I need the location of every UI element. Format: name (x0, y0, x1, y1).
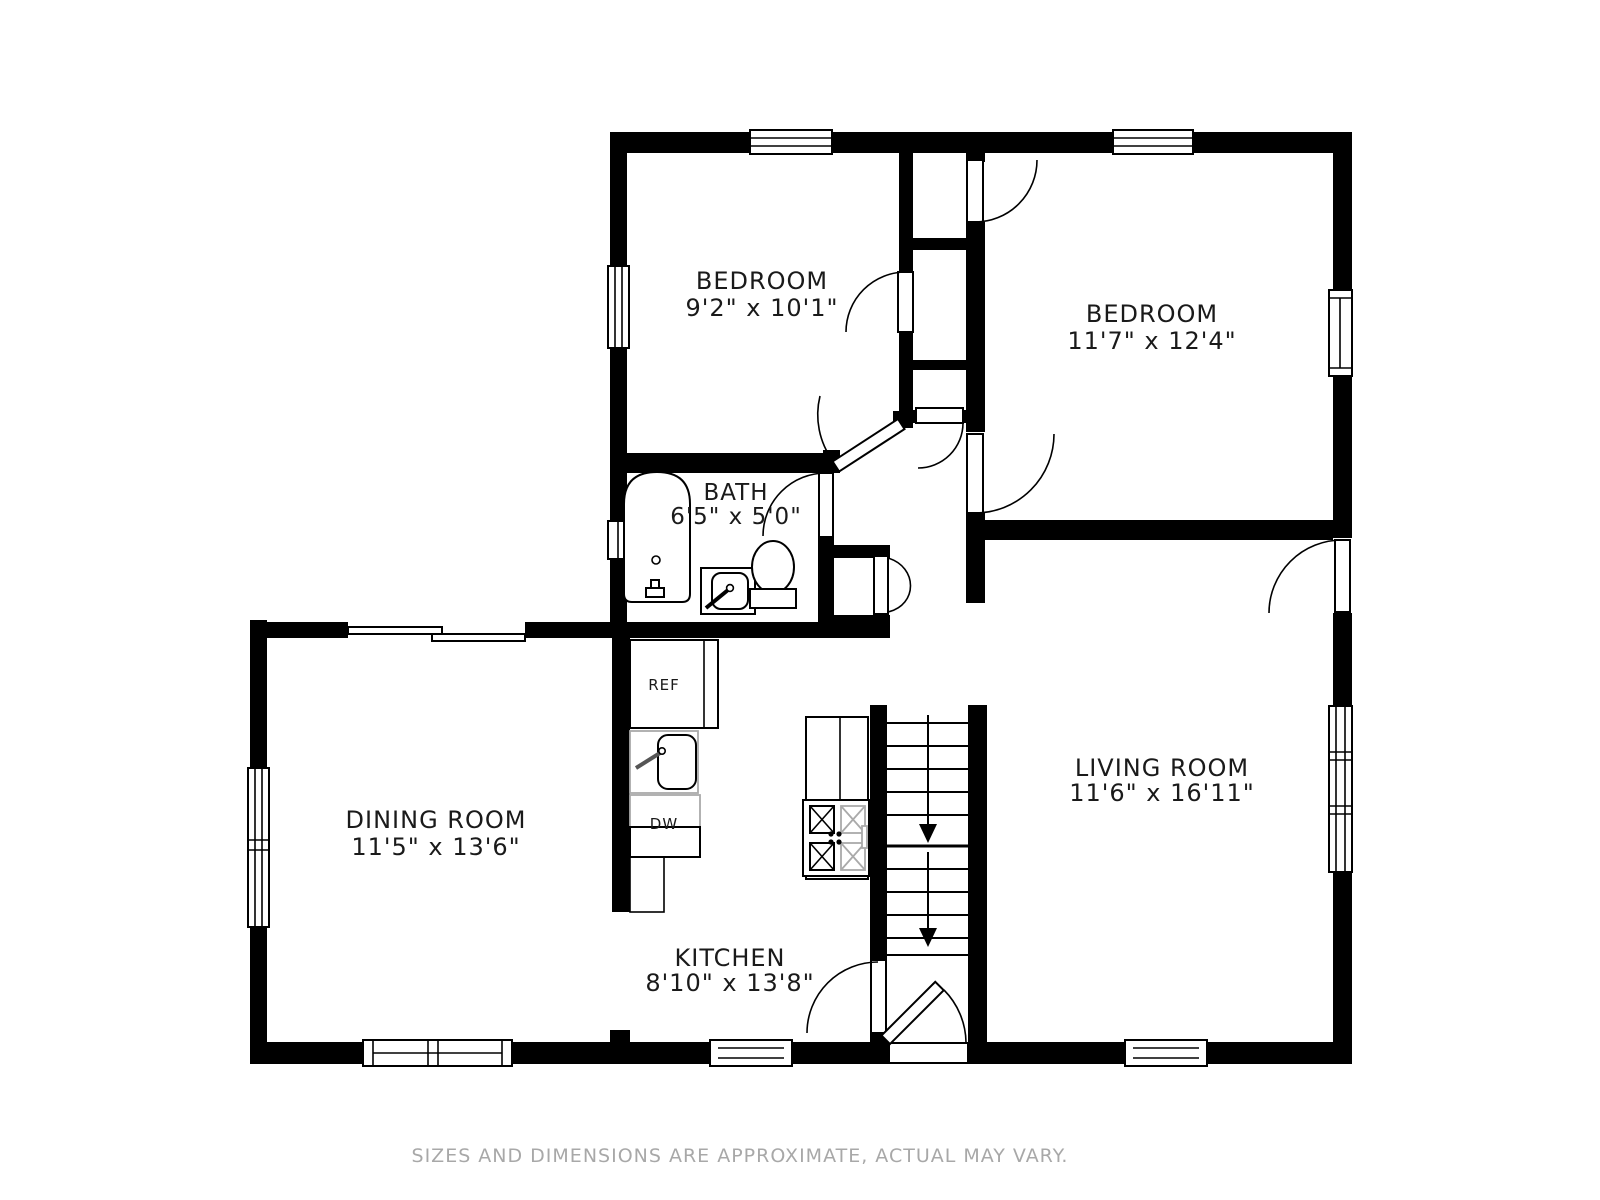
bathroom-sink-icon (701, 568, 755, 614)
bedroom-2-top-window (1113, 130, 1193, 154)
living-room-bottom-window (1125, 1040, 1207, 1066)
dining-room-pass-through (348, 627, 525, 641)
kitchen-door (807, 960, 886, 1033)
disclaimer-text: SIZES AND DIMENSIONS ARE APPROXIMATE, AC… (412, 1145, 1069, 1167)
entry-door (882, 982, 967, 1062)
room-label-bedroom-2: BEDROOM (1086, 300, 1218, 328)
room-dims-living-room: 11'6" x 16'11" (1069, 779, 1255, 807)
living-room-right-window (1329, 706, 1352, 872)
kitchen-fixtures: REF DW (630, 640, 869, 912)
room-dims-bedroom-1: 9'2" x 10'1" (685, 294, 838, 322)
room-label-bath: BATH (703, 480, 768, 506)
dining-room-bottom-window (363, 1040, 512, 1066)
room-label-living-room: LIVING ROOM (1075, 754, 1249, 782)
toilet-icon (750, 541, 796, 608)
dishwasher-label: DW (650, 815, 678, 833)
bedroom-1-left-window (608, 266, 629, 348)
dining-room-left-window (248, 768, 269, 927)
refrigerator-icon: REF (630, 640, 718, 728)
bedroom-2-right-window (1329, 290, 1352, 376)
bedroom-2-closet-door (967, 160, 1037, 222)
room-label-bedroom-1: BEDROOM (696, 267, 828, 295)
stove-icon (803, 800, 869, 876)
room-label-dining-room: DINING ROOM (346, 806, 527, 834)
room-dims-kitchen: 8'10" x 13'8" (645, 969, 814, 997)
kitchen-bottom-window (710, 1040, 792, 1066)
doors (763, 160, 1352, 1062)
hall-closet-door (874, 556, 911, 614)
bathtub-icon (624, 472, 690, 602)
room-dims-bedroom-2: 11'7" x 12'4" (1067, 327, 1236, 355)
bedroom-1-top-window (750, 130, 832, 154)
bedroom-2-door (967, 434, 1054, 513)
floor-plan-page: REF DW (0, 0, 1600, 1200)
room-dims-dining-room: 11'5" x 13'6" (351, 833, 520, 861)
floor-plan-canvas: REF DW (0, 0, 1600, 1200)
room-label-kitchen: KITCHEN (675, 944, 786, 972)
front-door (1269, 538, 1352, 613)
kitchen-sink-icon (630, 731, 698, 793)
room-dims-bath: 6'5" x 5'0" (670, 504, 802, 530)
refrigerator-label: REF (648, 676, 680, 694)
dishwasher-icon: DW (630, 795, 700, 857)
kitchen-counter (630, 857, 664, 912)
linen-closet-door (916, 408, 963, 468)
bedroom-1-closet-door (846, 272, 913, 332)
stair-direction-arrows (919, 715, 937, 947)
staircase (887, 715, 968, 955)
